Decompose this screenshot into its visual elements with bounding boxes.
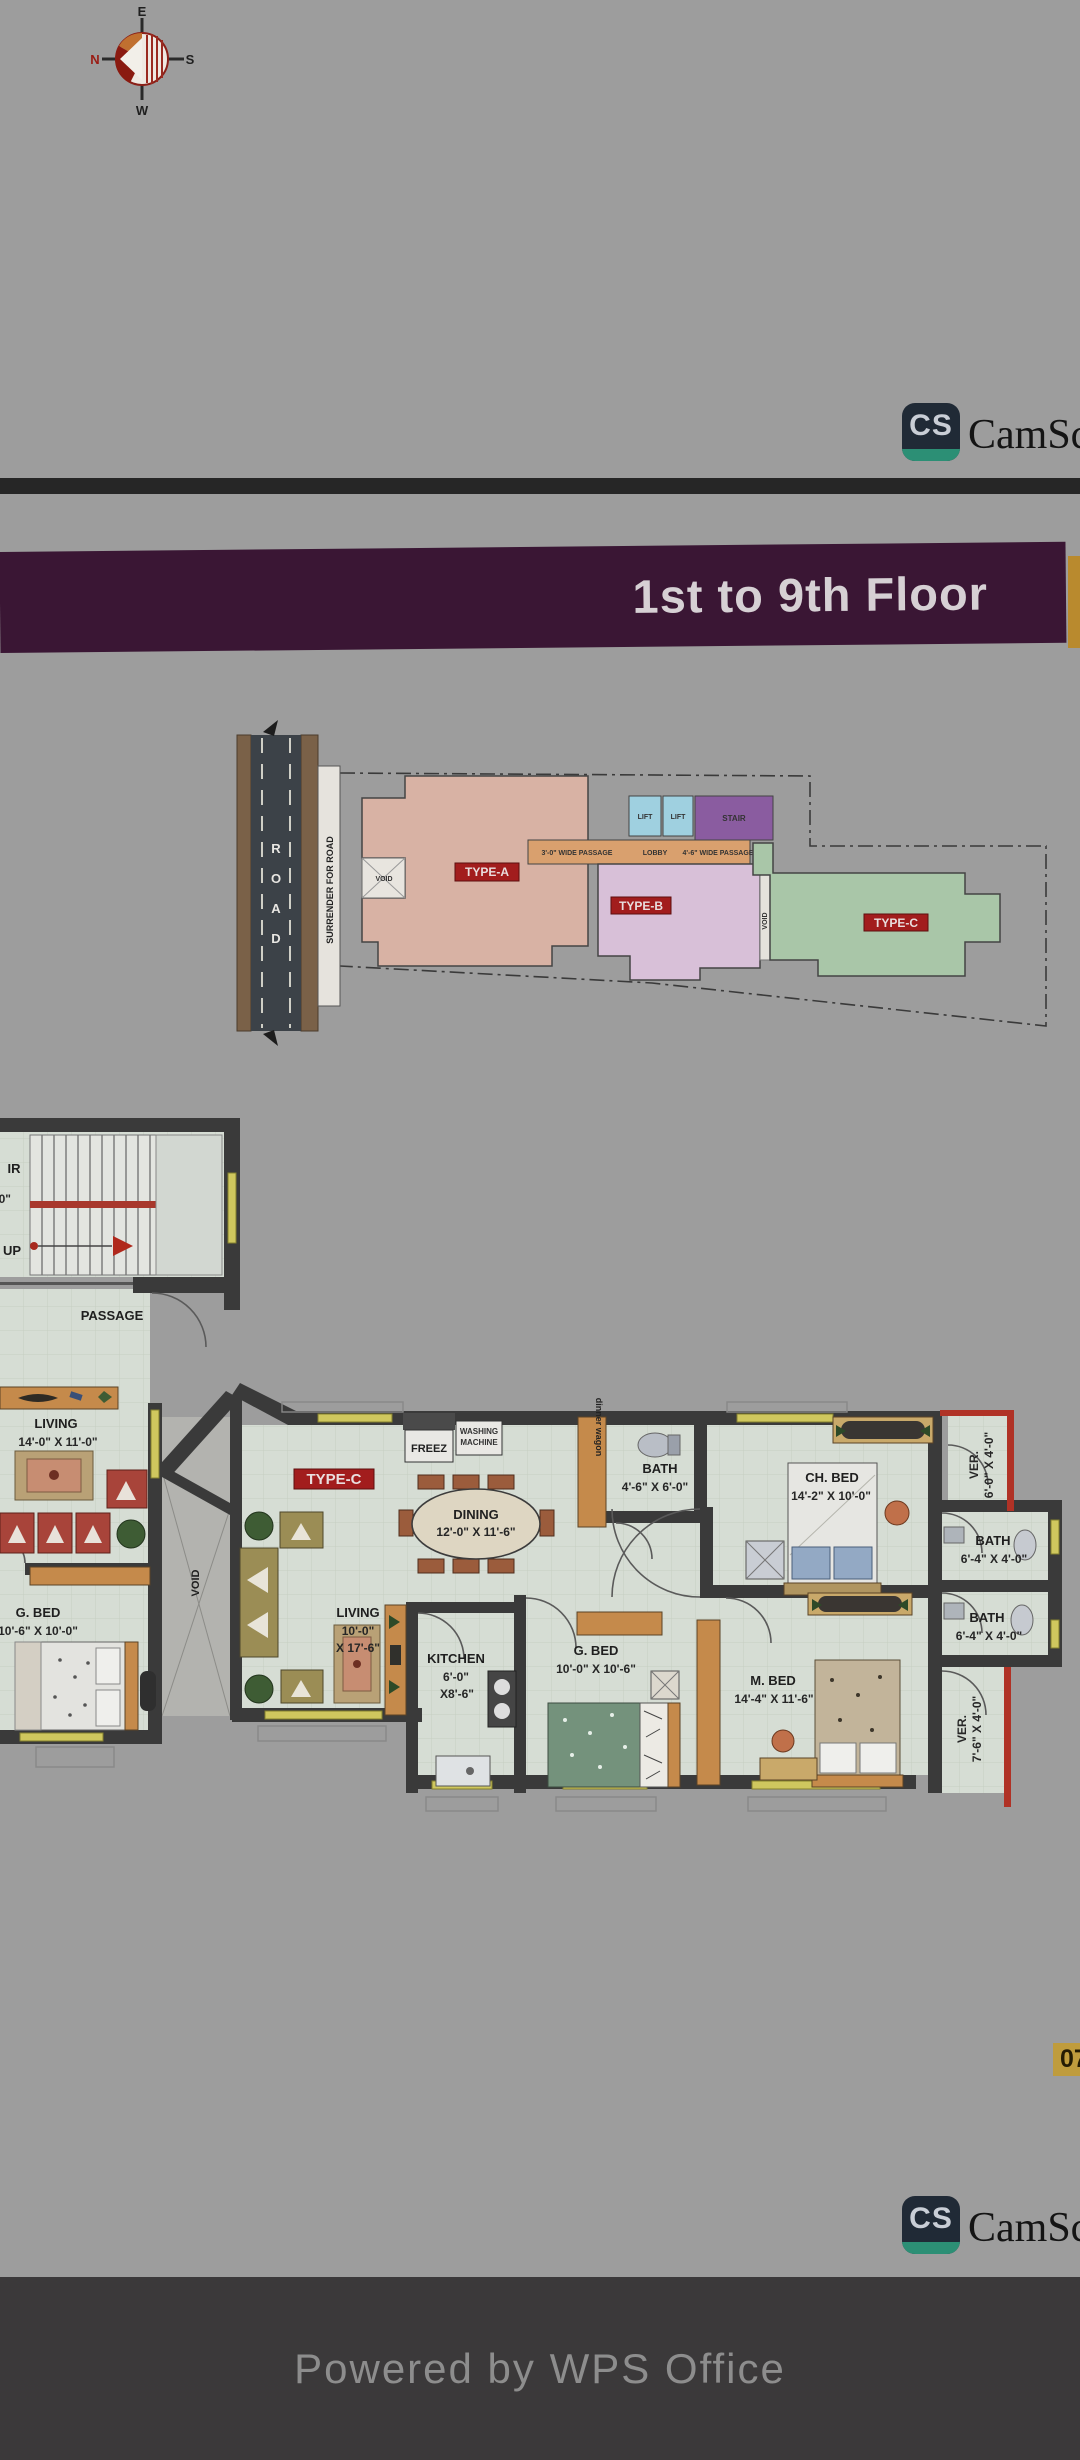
unit-type-label: TYPE-C — [306, 1471, 361, 1488]
road-letter: A — [271, 901, 281, 916]
chbed-dim: 14'-2" X 10'-0" — [791, 1489, 871, 1503]
passage-strip: 3'-0" WIDE PASSAGE LOBBY 4'-6" WIDE PASS… — [528, 840, 754, 864]
chbed-name: CH. BED — [805, 1470, 858, 1485]
camscanner-logo-strip — [902, 449, 960, 461]
dresser — [760, 1758, 817, 1780]
bath1-fixtures — [638, 1433, 680, 1457]
sink — [436, 1756, 490, 1786]
void-b-label: VOID — [762, 912, 769, 929]
bath2-dim: 6'-4" X 4'-0" — [961, 1552, 1027, 1566]
void-label: VOID — [190, 1570, 202, 1597]
dining-name: DINING — [453, 1507, 499, 1522]
freez-label: FREEZ — [411, 1443, 447, 1455]
pot-icon — [885, 1501, 909, 1525]
camscanner-logo-icon: CS — [902, 403, 960, 461]
gbed2-dim: 10'-0" X 10'-6" — [556, 1662, 636, 1676]
lift-1-label: LIFT — [638, 814, 653, 821]
gbed2-name: G. BED — [574, 1643, 619, 1658]
washing-label-1: WASHING — [460, 1427, 498, 1436]
compass-icon: E S W N — [50, 0, 230, 125]
lift-2-label: LIFT — [671, 814, 686, 821]
camscanner-logo-text-2: CS — [902, 2196, 960, 2242]
banner-edge-accent — [1068, 556, 1080, 648]
kitchen-dim1: 6'-0" — [443, 1670, 469, 1684]
gbed1-dim: 10'-6" X 10'-0" — [0, 1624, 78, 1638]
dinner-wagon-label: dinner wagon — [594, 1398, 604, 1457]
road-letter: R — [271, 841, 281, 856]
pot-icon-2 — [772, 1730, 794, 1752]
cabinet — [30, 1567, 150, 1585]
plant-icon — [117, 1520, 145, 1548]
type-b-block: TYPE-B — [598, 864, 760, 980]
wardrobe — [697, 1620, 720, 1785]
camscanner-mark-bottom: CS CamScanner — [902, 2196, 1080, 2258]
bath1-name: BATH — [642, 1461, 677, 1476]
compass-s: S — [186, 52, 195, 67]
lift-stair-block: LIFT LIFT STAIR — [629, 796, 773, 840]
washing-label-2: MACHINE — [460, 1438, 498, 1447]
floor-banner-title: 1st to 9th Floor — [632, 565, 1066, 624]
stair-label: STAIR — [722, 814, 746, 823]
kitchen-dim2: X8'-6" — [440, 1687, 474, 1701]
stair-dim-label: 8'-0" — [0, 1192, 11, 1206]
compass-w: W — [136, 103, 149, 118]
road-letter: O — [271, 871, 281, 886]
red-sofa-row — [0, 1513, 110, 1553]
kitchen-name: KITCHEN — [427, 1651, 485, 1666]
type-c-block: TYPE-C — [753, 843, 1000, 976]
type-b-label: TYPE-B — [619, 899, 663, 913]
living1-name: LIVING — [34, 1416, 77, 1431]
living2-dim1: 10'-0" — [342, 1624, 375, 1638]
bed-gbed1 — [15, 1642, 138, 1730]
type-a-block: VOID TYPE-A — [362, 776, 588, 966]
living1-dim: 14'-0" X 11'-0" — [18, 1435, 97, 1449]
surrender-label: SURRENDER FOR ROAD — [325, 836, 335, 944]
up-label: UP — [3, 1243, 21, 1258]
camscanner-logo-strip-2 — [902, 2242, 960, 2254]
void-a-label: VOID — [375, 876, 392, 883]
ver2-dim: 7'-6" X 4'-0" — [970, 1696, 984, 1762]
page-separator — [0, 478, 1080, 494]
door-leaf — [140, 1671, 156, 1711]
type-a-label: TYPE-A — [465, 865, 509, 879]
staircase — [30, 1135, 222, 1275]
bath2-name: BATH — [975, 1533, 1010, 1548]
ver1-name: VER. — [967, 1451, 981, 1479]
ver1-dim: 6'-0" X 4'-0" — [982, 1432, 996, 1498]
unit-type-badge: TYPE-C — [294, 1469, 374, 1489]
counter — [403, 1413, 455, 1430]
ver2-name: VER. — [955, 1715, 969, 1743]
bath1-dim: 4'-6" X 6'-0" — [622, 1480, 688, 1494]
dining-dim: 12'-0" X 11'-6" — [436, 1525, 515, 1539]
road-letter: D — [271, 931, 280, 946]
camscanner-logo-text: CS — [902, 403, 960, 449]
camscanner-brand-text: CamScanner — [968, 411, 1080, 459]
page-number-badge: 07 — [1053, 2043, 1080, 2076]
type-c-label: TYPE-C — [874, 916, 918, 930]
app-bottom-bar: Powered by WPS Office — [0, 2277, 1080, 2460]
floor-plan: VOID — [0, 1115, 1080, 1820]
stair-cut-label: IR — [8, 1161, 22, 1176]
camscanner-logo-icon-2: CS — [902, 2196, 960, 2254]
road-band: R O A D — [237, 720, 318, 1046]
site-plan: R O A D SURRENDER FOR ROAD VOID TYPE-A 3… — [200, 718, 1080, 1048]
wps-viewer-screen: E S W N CS CamScanner 1st to 9th Floor R… — [0, 0, 1080, 2460]
powered-by-label: Powered by WPS Office — [0, 2345, 1080, 2393]
floor-banner: 1st to 9th Floor — [0, 542, 1066, 653]
lobby-label: LOBBY — [643, 850, 668, 857]
camscanner-mark-top: CS CamScanner — [902, 403, 1080, 465]
compass-n: N — [90, 52, 99, 67]
bed-gbed2 — [548, 1703, 640, 1787]
living2-name: LIVING — [336, 1605, 379, 1620]
mbed-name: M. BED — [750, 1673, 796, 1688]
gbed1-name: G. BED — [16, 1605, 61, 1620]
bath3-dim: 6'-4" X 4'-0" — [956, 1629, 1022, 1643]
compass-e: E — [138, 4, 147, 19]
dinner-wagon: dinner wagon — [578, 1398, 606, 1527]
camscanner-brand-text-2: CamScanner — [968, 2204, 1080, 2252]
passage-right-label: 4'-6" WIDE PASSAGE — [683, 850, 754, 857]
passage-label: PASSAGE — [81, 1308, 144, 1323]
surrender-strip: SURRENDER FOR ROAD — [318, 766, 340, 1006]
passage-left-label: 3'-0" WIDE PASSAGE — [542, 850, 613, 857]
living2-dim2: X 17'-6" — [336, 1641, 380, 1655]
mbed-dim: 14'-4" X 11'-6" — [734, 1692, 813, 1706]
bath3-name: BATH — [969, 1610, 1004, 1625]
